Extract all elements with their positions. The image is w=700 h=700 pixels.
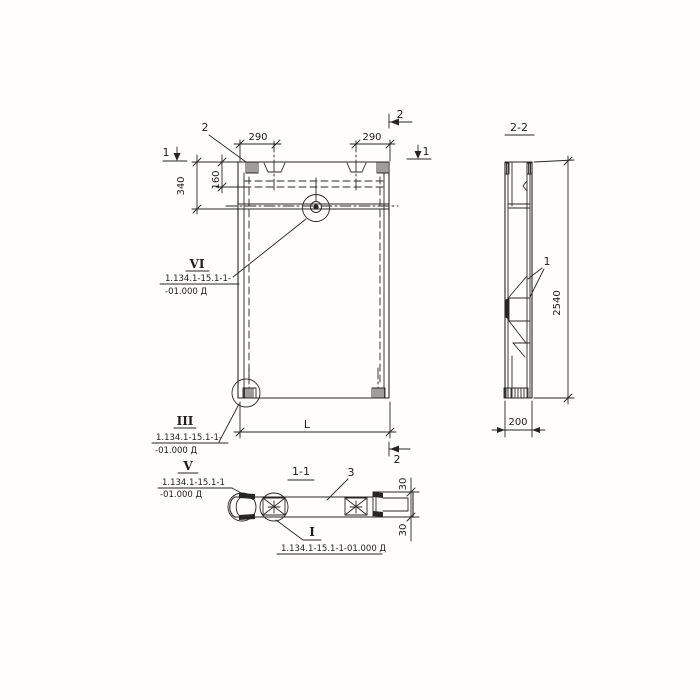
cut-marker-1-left: 1 [163,146,170,159]
drawing-canvas: 290 290 340 160 L 1 1 [0,0,700,700]
panel-drawing: 290 290 340 160 L 1 1 [0,0,700,700]
callout-v-doc-line1: 1.134.1-15.1-1 [162,478,225,488]
callout-v-numeral: V [182,459,193,473]
section-middle-recess [345,498,367,515]
side-bottom-hatches [504,388,528,398]
side-view-title: 2-2 [510,121,528,134]
callout-vi-doc-line1: 1.134.1-15.1-1- [165,274,231,284]
cut-marker-2-top: 2 [397,108,404,121]
dim-2540: 2540 [552,290,563,315]
dim-200: 200 [508,417,527,428]
side-view: 2-2 [492,121,574,437]
callout-vi: VI 1.134.1-15.1-1- -01.000 Д [160,219,306,297]
side-top-hatches [505,163,532,174]
corner-detail-label: 2 [202,121,209,134]
dim-30-top: 30 [398,478,409,491]
callout-vi-doc-line2: -01.000 Д [165,287,208,297]
section-view: 1-1 [228,465,419,541]
cut-marker-1-right: 1 [423,145,430,158]
lifting-loop-detail [303,178,330,222]
dim-length: L [304,418,311,431]
front-top-right-hatch [377,162,389,173]
section-part-3-label: 3 [348,466,355,479]
side-recess-detail [505,276,530,357]
callout-iii: III 1.134.1-15.1-1- -01.000 Д [152,404,239,456]
dim-290-right: 290 [362,132,381,143]
front-top-left-hatch [246,162,258,173]
dim-30-bottom: 30 [398,524,409,537]
front-bottom-right-hatch [372,368,385,398]
cut-marker-2-bottom: 2 [394,453,401,466]
front-left-recess [264,163,285,172]
front-right-recess [347,163,366,172]
callout-iii-numeral: III [177,414,194,428]
front-bottom-left-hatch [243,368,256,398]
loop-pin [313,204,318,209]
section-view-title: 1-1 [292,465,310,478]
section-left-recess [263,498,285,515]
callout-vi-numeral: VI [189,257,205,271]
callout-i: I 1.134.1-15.1-1-01.000 Д [276,520,386,554]
callout-iii-doc-line2: -01.000 Д [155,446,198,456]
side-part-1-label: 1 [544,255,551,268]
callout-i-doc-line: 1.134.1-15.1-1-01.000 Д [281,544,386,554]
callout-iii-doc-line1: 1.134.1-15.1-1- [156,433,222,443]
front-dimensions: 290 290 340 160 L [176,132,396,438]
callout-v-doc-line2: -01.000 Д [160,490,203,500]
dim-340: 340 [176,176,187,195]
callout-i-numeral: I [309,525,315,539]
dim-290-left: 290 [248,132,267,143]
dim-160: 160 [211,170,222,189]
